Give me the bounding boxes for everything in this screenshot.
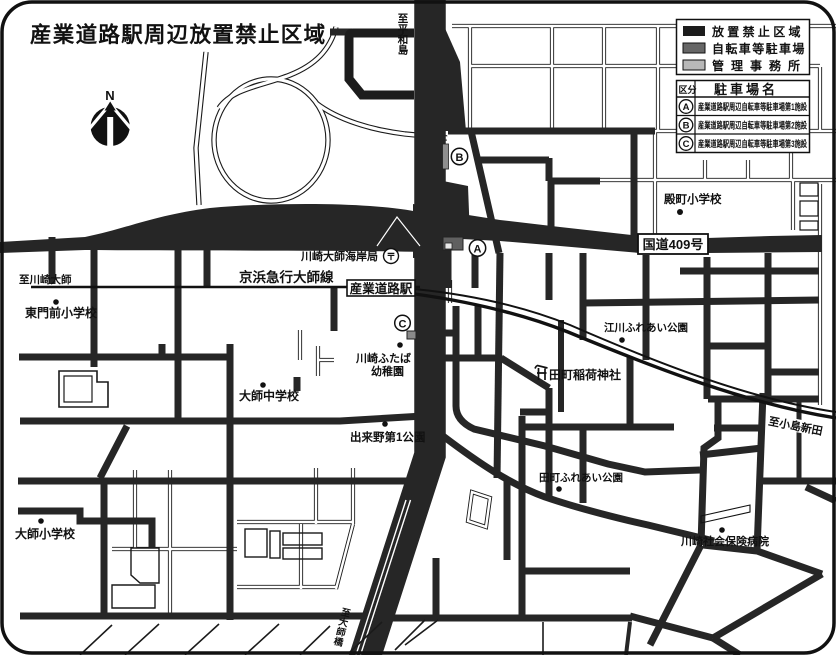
svg-text:産業道路駅周辺放置禁止区域: 産業道路駅周辺放置禁止区域 [30,22,326,47]
svg-text:C: C [683,139,690,150]
svg-text:国道409号: 国道409号 [643,237,704,252]
svg-text:京浜急行大師線: 京浜急行大師線 [239,269,334,285]
svg-text:東門前小学校: 東門前小学校 [25,305,98,320]
svg-text:N: N [105,88,114,103]
svg-text:管理事務所: 管理事務所 [712,58,807,73]
svg-text:B: B [683,121,690,132]
svg-text:大師中学校: 大師中学校 [239,388,300,403]
svg-text:島: 島 [398,44,409,57]
svg-text:A: A [683,102,690,113]
svg-text:至川崎大師: 至川崎大師 [19,273,72,286]
svg-text:A: A [474,244,482,256]
svg-text:出来野第1公園: 出来野第1公園 [350,430,425,444]
svg-text:川崎ふたば: 川崎ふたば [355,351,411,365]
svg-text:産業道路駅周辺自転車等駐車場第2施設: 産業道路駅周辺自転車等駐車場第2施設 [698,120,808,131]
svg-text:川崎大師海岸局: 川崎大師海岸局 [300,249,378,263]
svg-text:川崎社会保険病院: 川崎社会保険病院 [680,534,769,548]
svg-text:産業道路駅周辺自転車等駐車場第3施設: 産業道路駅周辺自転車等駐車場第3施設 [698,138,808,149]
svg-text:〒: 〒 [386,252,396,263]
svg-text:駐車場名: 駐車場名 [714,82,778,97]
svg-text:自転車等駐車場: 自転車等駐車場 [712,41,806,56]
svg-text:産業道路駅: 産業道路駅 [350,281,413,296]
svg-text:区分: 区分 [679,84,697,95]
svg-text:幼稚園: 幼稚園 [371,364,404,378]
svg-text:江川ふれあい公園: 江川ふれあい公園 [604,321,688,334]
svg-text:大師小学校: 大師小学校 [15,526,76,541]
svg-text:C: C [399,319,407,331]
svg-text:田町稲荷神社: 田町稲荷神社 [549,367,621,382]
svg-text:放置禁止区域: 放置禁止区域 [711,24,804,39]
svg-text:B: B [456,152,464,164]
svg-text:産業道路駅周辺自転車等駐車場第1施設: 産業道路駅周辺自転車等駐車場第1施設 [698,101,808,112]
svg-text:田町ふれあい公園: 田町ふれあい公園 [539,471,623,484]
svg-text:殿町小学校: 殿町小学校 [663,192,722,206]
